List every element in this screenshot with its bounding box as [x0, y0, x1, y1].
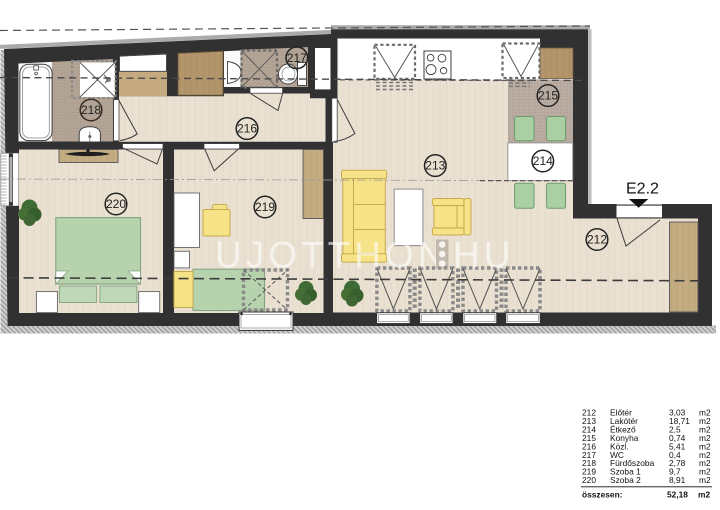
svg-text:220: 220 — [106, 197, 126, 211]
svg-text:214: 214 — [533, 154, 553, 168]
svg-text:52,18: 52,18 — [667, 490, 688, 500]
svg-text:219: 219 — [255, 200, 275, 214]
svg-text:216: 216 — [237, 122, 257, 136]
svg-text:UJOTTHON: UJOTTHON — [215, 235, 448, 276]
svg-text:m2: m2 — [699, 475, 711, 485]
svg-text:218: 218 — [81, 103, 101, 117]
svg-text:m2: m2 — [698, 490, 710, 500]
svg-text:8,91: 8,91 — [669, 475, 686, 485]
svg-text:220: 220 — [582, 475, 596, 485]
svg-text:HU: HU — [453, 235, 514, 276]
svg-text:212: 212 — [587, 233, 607, 247]
svg-text:217: 217 — [287, 51, 307, 65]
svg-text:215: 215 — [538, 89, 558, 103]
svg-text:213: 213 — [425, 159, 445, 173]
svg-text:összesen:: összesen: — [582, 490, 623, 500]
svg-text:Szoba 2: Szoba 2 — [610, 475, 641, 485]
svg-text:E2.2: E2.2 — [626, 181, 659, 198]
